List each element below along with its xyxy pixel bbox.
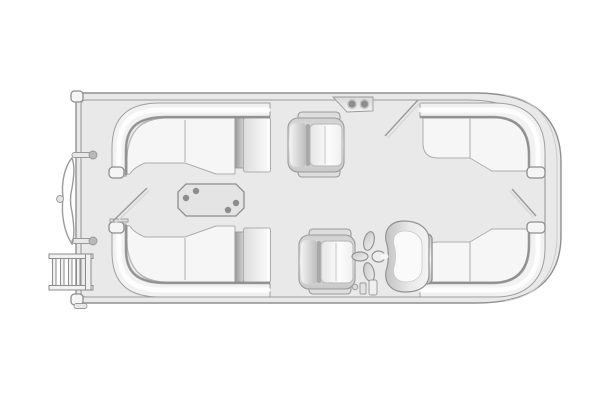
bow-corner-cap-top: [71, 91, 83, 102]
chair-seat: [310, 124, 342, 166]
propeller-blade-left: [352, 252, 368, 261]
helm-chair-lower: [299, 229, 355, 294]
end-seat-backrest: [235, 118, 244, 168]
stern-fitting-1: [352, 284, 358, 290]
ladder-stile: [86, 254, 92, 290]
ladder-rung-1: [53, 258, 57, 286]
chair-seam: [306, 124, 310, 166]
ladder-rung-2: [61, 258, 65, 286]
ladder-rung-4: [77, 258, 81, 286]
table-cupholder-1: [193, 188, 199, 194]
lounge-end-cap: [527, 167, 545, 178]
pontoon-floorplan: [0, 0, 600, 400]
propeller-nose: [381, 254, 389, 260]
chair-backrest: [290, 123, 307, 167]
nose-cleat: [57, 196, 64, 203]
table-cupholder-3: [225, 207, 231, 213]
bow-corner-foot: [74, 304, 87, 309]
screenshot-root: [0, 0, 600, 400]
dining-table: [178, 184, 244, 216]
lounge-end-cap: [109, 167, 124, 178]
motor-cowling-inner: [393, 231, 422, 282]
stern-fitting-2: [360, 283, 366, 294]
boarding-ladder: [49, 254, 93, 290]
lounge-cushion-a: [423, 118, 470, 158]
nose-cone-shape: [62, 158, 73, 244]
ladder-rung-3: [69, 258, 73, 286]
stern-fitting-3: [369, 280, 377, 295]
helm-chair-upper: [288, 112, 344, 177]
table-cupholder-2: [183, 195, 189, 201]
cupholder-1: [348, 100, 356, 108]
end-seat-cushion: [244, 118, 271, 172]
nose-pin-bottom-end: [89, 237, 97, 245]
nose-pin-top-end: [89, 151, 97, 159]
table-cupholder-4: [233, 200, 239, 206]
cupholder-2: [360, 100, 368, 108]
